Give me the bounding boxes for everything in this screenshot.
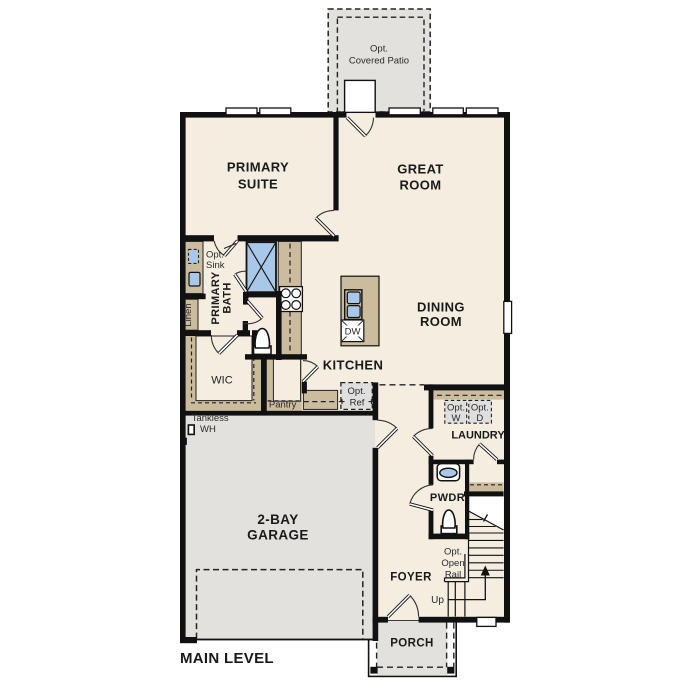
- svg-text:WIC: WIC: [211, 375, 232, 387]
- svg-text:FOYER: FOYER: [390, 572, 432, 584]
- svg-text:D: D: [476, 413, 483, 424]
- svg-text:Opt.: Opt.: [206, 250, 224, 261]
- svg-text:DINING: DINING: [417, 300, 465, 315]
- svg-text:Opt.: Opt.: [348, 386, 366, 397]
- svg-text:ROOM: ROOM: [420, 314, 462, 329]
- svg-text:ROOM: ROOM: [399, 178, 441, 193]
- svg-text:Sink: Sink: [206, 260, 225, 271]
- svg-text:Pantry: Pantry: [269, 400, 297, 411]
- svg-text:Ref: Ref: [350, 397, 365, 408]
- svg-text:W: W: [452, 413, 461, 424]
- svg-text:Up: Up: [431, 595, 444, 606]
- svg-text:DW: DW: [345, 327, 361, 338]
- svg-text:2-BAY: 2-BAY: [257, 512, 298, 527]
- svg-text:Opt.: Opt.: [444, 547, 462, 558]
- svg-text:Opt.: Opt.: [370, 44, 388, 55]
- svg-text:KITCHEN: KITCHEN: [323, 358, 384, 373]
- svg-text:MAIN LEVEL: MAIN LEVEL: [180, 650, 274, 667]
- svg-text:WH: WH: [200, 424, 216, 435]
- svg-text:BATH: BATH: [222, 282, 234, 313]
- svg-text:LAUNDRY: LAUNDRY: [451, 430, 505, 442]
- svg-text:PWDR: PWDR: [430, 492, 465, 504]
- svg-text:Rail: Rail: [445, 570, 461, 581]
- svg-text:Covered Patio: Covered Patio: [349, 56, 409, 67]
- svg-text:GREAT: GREAT: [397, 162, 444, 177]
- svg-text:Tankless: Tankless: [192, 413, 229, 424]
- svg-text:Opt.: Opt.: [471, 403, 489, 414]
- svg-text:GARAGE: GARAGE: [247, 528, 309, 543]
- svg-text:SUITE: SUITE: [238, 177, 278, 192]
- svg-text:Open: Open: [441, 558, 464, 569]
- svg-text:PORCH: PORCH: [390, 638, 434, 650]
- svg-text:PRIMARY: PRIMARY: [210, 271, 222, 324]
- svg-text:Opt.: Opt.: [447, 403, 465, 414]
- svg-text:PRIMARY: PRIMARY: [227, 160, 289, 175]
